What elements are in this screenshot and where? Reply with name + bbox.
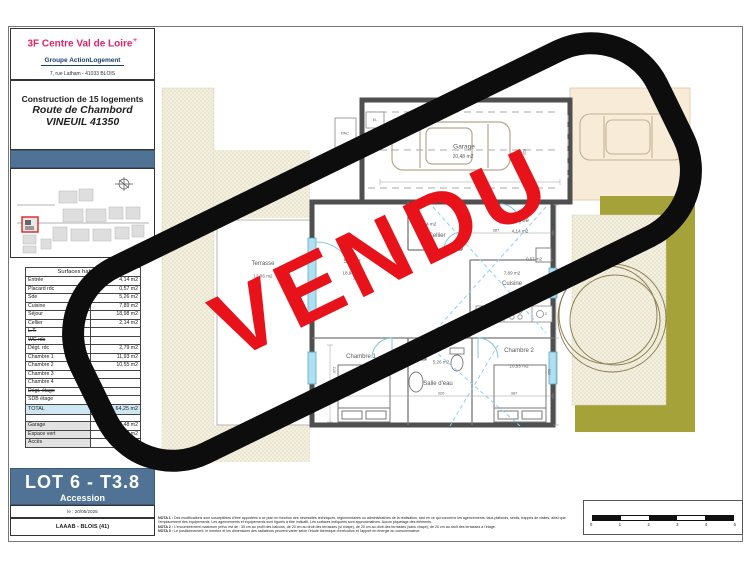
plan-label-el: EL: [373, 118, 377, 122]
plan-label-chambre2-area: 10,55 m2: [509, 364, 528, 369]
plan-label-sde-area: 5,26 m2: [433, 360, 450, 365]
plan-label-chambre2-name: Chambre 2: [504, 348, 534, 354]
plan-label-pac: PAC: [341, 131, 349, 136]
plan-label-dim-320: 320: [438, 391, 445, 396]
plan-label-dim-358: 358: [547, 369, 552, 376]
plan-label-dim-387-bot: 387: [511, 391, 518, 396]
plan-label-sde-name: Salle d'eau: [423, 381, 453, 387]
plan-label-appl-c: C: [545, 312, 548, 316]
